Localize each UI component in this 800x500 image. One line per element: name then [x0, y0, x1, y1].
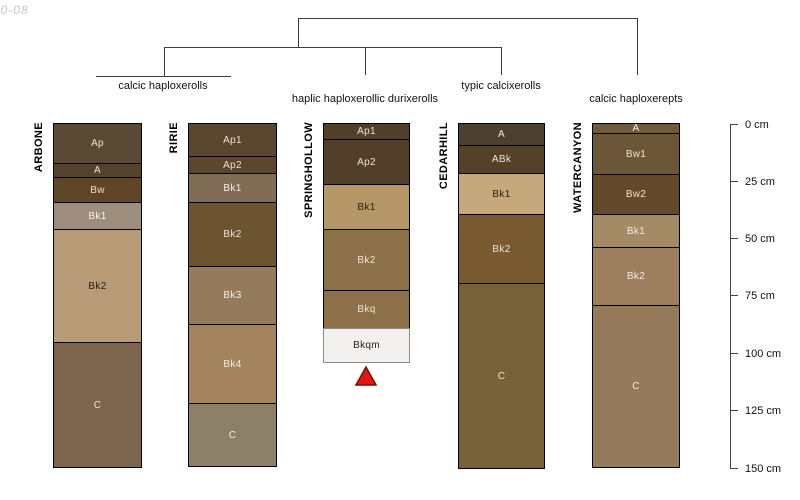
horizon-label: Ap1	[223, 135, 242, 146]
depth-tick-label: 25 cm	[745, 176, 775, 188]
dendrogram-line	[164, 47, 165, 77]
horizon-label: Bk1	[88, 211, 106, 222]
horizon-block: Bw2	[592, 174, 680, 215]
horizon-label: Bkqm	[353, 340, 380, 351]
depth-tick	[730, 181, 738, 182]
horizon-block: Bk2	[188, 202, 277, 267]
depth-tick	[730, 468, 738, 469]
taxon-label: typic calcixerolls	[461, 80, 540, 92]
horizon-label: Bk3	[223, 290, 241, 301]
horizon-block: Ap1	[188, 123, 277, 157]
depth-tick-label: 0 cm	[745, 119, 769, 131]
profile-name-arbone: ARBONE	[33, 122, 45, 172]
depth-tick	[730, 353, 738, 354]
horizon-label: C	[229, 430, 237, 441]
horizon-block: Bk2	[53, 229, 142, 343]
horizon-block: Bk2	[458, 214, 545, 284]
horizon-label: C	[632, 381, 640, 392]
horizon-block: Bk2	[592, 247, 680, 306]
horizon-label: Bk1	[627, 226, 645, 237]
soil-profile-figure: 10-08 calcic haploxerollshaplic haploxer…	[0, 0, 800, 500]
profile-name-watercanyon: WATERCANYON	[572, 122, 584, 213]
horizon-block: Bk1	[188, 173, 277, 203]
dendrogram-line	[298, 18, 299, 47]
dendrogram-line	[96, 76, 231, 77]
profile-column-watercanyon: ABw1Bw2Bk1Bk2C	[592, 123, 680, 468]
horizon-label: Ap2	[357, 157, 376, 168]
horizon-block: Bk1	[458, 173, 545, 215]
profile-name-ririe: RIRIE	[168, 122, 180, 153]
taxon-label: calcic haploxerepts	[589, 93, 683, 105]
horizon-label: Bw1	[626, 149, 646, 160]
depth-tick-label: 100 cm	[745, 348, 781, 360]
horizon-label: Bk2	[88, 281, 106, 292]
depth-tick	[730, 124, 738, 125]
depth-tick-label: 50 cm	[745, 233, 775, 245]
horizon-block: Bw	[53, 177, 142, 203]
duripan-triangle-marker	[353, 364, 379, 388]
horizon-label: Bk4	[223, 359, 241, 370]
horizon-block: Bw1	[592, 133, 680, 175]
profile-column-arbone: ApABwBk1Bk2C	[53, 123, 142, 468]
horizon-label: Bk2	[492, 244, 510, 255]
horizon-block: Ap	[53, 123, 142, 164]
horizon-block: C	[188, 403, 277, 467]
horizon-label: C	[94, 400, 102, 411]
horizon-block: Ap2	[188, 156, 277, 174]
horizon-label: Bk1	[492, 189, 510, 200]
profile-column-springhollow: Ap1Ap2Bk1Bk2BkqBkqm	[323, 123, 410, 363]
taxon-label: calcic haploxerolls	[118, 80, 207, 92]
date-stamp: 10-08	[0, 3, 29, 17]
horizon-label: Ap2	[223, 160, 242, 171]
horizon-block: Bk2	[323, 229, 410, 291]
horizon-label: A	[498, 129, 505, 140]
depth-tick-label: 75 cm	[745, 290, 775, 302]
depth-tick	[730, 238, 738, 239]
horizon-label: Bk2	[357, 255, 375, 266]
horizon-label: Ap	[91, 138, 104, 149]
depth-tick	[730, 410, 738, 411]
profile-name-cedarhill: CEDARHILL	[438, 122, 450, 189]
horizon-block: Bkqm	[323, 328, 410, 363]
horizon-label: Bk1	[357, 202, 375, 213]
horizon-block: ABk	[458, 145, 545, 174]
depth-tick-label: 150 cm	[745, 463, 781, 475]
horizon-block: A	[53, 163, 142, 178]
horizon-block: C	[592, 305, 680, 468]
horizon-label: A	[94, 165, 101, 176]
horizon-block: A	[458, 123, 545, 146]
horizon-label: Bk2	[223, 229, 241, 240]
taxon-label: haplic haploxerollic durixerolls	[292, 93, 438, 105]
horizon-label: Bw2	[626, 189, 646, 200]
horizon-label: ABk	[492, 154, 511, 165]
dendrogram-line	[365, 47, 366, 75]
horizon-label: Ap1	[357, 126, 376, 137]
horizon-block: Bk1	[592, 214, 680, 248]
dendrogram-line	[164, 47, 501, 48]
horizon-label: C	[498, 371, 506, 382]
dendrogram-line	[501, 47, 502, 75]
horizon-label: Bk2	[627, 271, 645, 282]
dendrogram-line	[637, 18, 638, 75]
depth-tick	[730, 295, 738, 296]
depth-tick-label: 125 cm	[745, 405, 781, 417]
horizon-label: A	[633, 123, 640, 134]
horizon-label: Bw	[90, 185, 105, 196]
horizon-block: C	[53, 342, 142, 468]
dendrogram-line	[298, 18, 637, 19]
horizon-block: Ap2	[323, 139, 410, 185]
horizon-block: Bk4	[188, 324, 277, 404]
horizon-block: Bk1	[53, 202, 142, 230]
horizon-block: Bk3	[188, 266, 277, 325]
horizon-block: Bk1	[323, 184, 410, 230]
horizon-block: Bkq	[323, 290, 410, 329]
horizon-block: C	[458, 283, 545, 469]
horizon-label: Bk1	[223, 183, 241, 194]
profile-column-cedarhill: AABkBk1Bk2C	[458, 123, 545, 469]
horizon-block: Ap1	[323, 123, 410, 140]
horizon-label: Bkq	[357, 304, 375, 315]
profile-column-ririe: Ap1Ap2Bk1Bk2Bk3Bk4C	[188, 123, 277, 467]
profile-name-springhollow: SPRINGHOLLOW	[303, 122, 315, 218]
depth-axis-line	[730, 124, 731, 469]
